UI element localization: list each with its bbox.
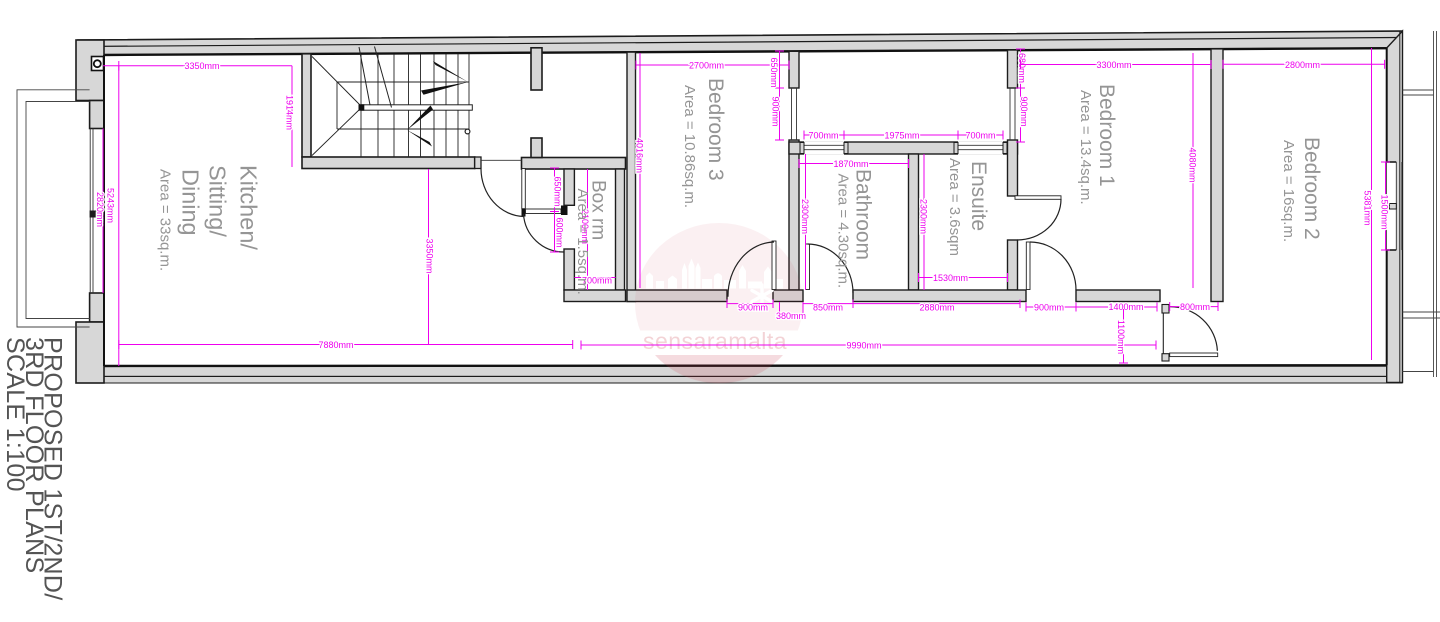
svg-text:SCALE 1:100: SCALE 1:100 <box>1 337 29 492</box>
svg-text:Bedroom 1: Bedroom 1 <box>1095 84 1118 187</box>
svg-text:700mm: 700mm <box>808 131 838 141</box>
svg-text:650mm: 650mm <box>769 57 779 87</box>
svg-text:Dining: Dining <box>177 169 203 236</box>
svg-text:1530mm: 1530mm <box>933 273 968 283</box>
svg-text:2700mm: 2700mm <box>689 61 724 71</box>
svg-text:2820mm: 2820mm <box>95 192 105 227</box>
svg-text:900mm: 900mm <box>1034 303 1064 313</box>
svg-text:5381mm: 5381mm <box>1363 190 1373 225</box>
svg-text:4016mm: 4016mm <box>635 138 645 173</box>
svg-text:1914mm: 1914mm <box>284 95 294 130</box>
svg-text:1400mm: 1400mm <box>1108 302 1143 312</box>
svg-text:2880mm: 2880mm <box>919 303 954 313</box>
svg-text:1500mm: 1500mm <box>1380 194 1390 229</box>
svg-text:Sitting/: Sitting/ <box>204 165 230 237</box>
svg-text:3300mm: 3300mm <box>1096 60 1131 70</box>
svg-text:Area = 10.86sq.m.: Area = 10.86sq.m. <box>681 85 698 208</box>
svg-text:9990mm: 9990mm <box>846 341 881 351</box>
svg-text:2300mm: 2300mm <box>800 199 810 234</box>
svg-text:900mm: 900mm <box>1019 96 1029 126</box>
svg-text:650mm: 650mm <box>553 176 563 206</box>
svg-text:850mm: 850mm <box>813 303 843 313</box>
svg-text:sensaramalta: sensaramalta <box>643 328 787 354</box>
svg-text:5243mm: 5243mm <box>106 188 116 223</box>
svg-text:Bedroom 2: Bedroom 2 <box>1300 137 1323 240</box>
svg-text:Ensuite: Ensuite <box>967 161 990 231</box>
svg-text:4080mm: 4080mm <box>1188 147 1198 182</box>
svg-text:680mm: 680mm <box>1017 53 1027 83</box>
svg-text:900mm: 900mm <box>738 303 768 313</box>
svg-text:1975mm: 1975mm <box>884 131 919 141</box>
svg-text:600mm: 600mm <box>555 217 565 247</box>
svg-text:Bathroom: Bathroom <box>851 169 874 260</box>
svg-text:1100mm: 1100mm <box>1116 320 1126 354</box>
svg-text:700mm: 700mm <box>965 131 995 141</box>
svg-text:800mm: 800mm <box>1180 302 1210 312</box>
svg-text:Area = 13.4sq.m.: Area = 13.4sq.m. <box>1077 90 1094 205</box>
svg-text:Area = 3.6sqm: Area = 3.6sqm <box>946 158 963 256</box>
svg-text:2800mm: 2800mm <box>1285 60 1320 70</box>
svg-text:2300mm: 2300mm <box>919 199 929 234</box>
svg-text:3350mm: 3350mm <box>184 61 219 71</box>
svg-text:Area = 1.5sq.m.: Area = 1.5sq.m. <box>574 189 591 295</box>
svg-text:Area = 33sq.m.: Area = 33sq.m. <box>156 169 173 271</box>
svg-text:380mm: 380mm <box>776 311 806 321</box>
svg-text:Kitchen/: Kitchen/ <box>235 165 261 250</box>
svg-text:Area = 16sq.m.: Area = 16sq.m. <box>1280 140 1297 242</box>
svg-text:1870mm: 1870mm <box>833 159 868 169</box>
svg-text:7880mm: 7880mm <box>318 340 353 350</box>
svg-text:3350mm: 3350mm <box>425 238 435 273</box>
svg-text:900mm: 900mm <box>771 96 781 126</box>
svg-text:Area = 4.30sq.m.: Area = 4.30sq.m. <box>834 174 851 289</box>
svg-text:Bedroom 3: Bedroom 3 <box>704 78 727 181</box>
